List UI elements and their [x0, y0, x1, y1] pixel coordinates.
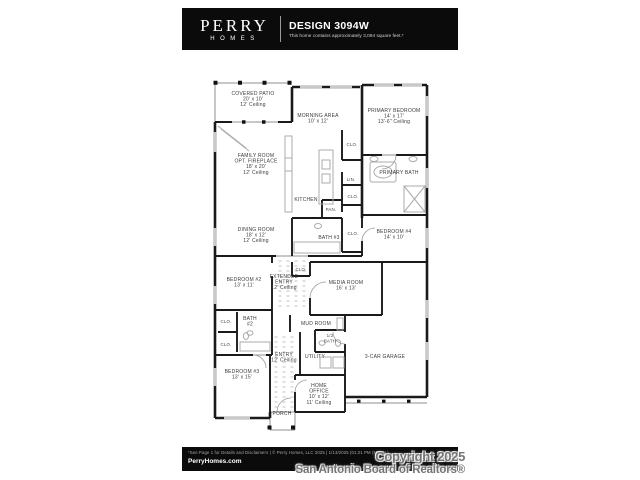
kitchen-counter — [285, 136, 292, 212]
room-label-bath-2: #2 — [247, 322, 253, 328]
watermark-board: San Antonio Board of Realtors® — [0, 464, 465, 476]
room-label-covered-patio: 12' Ceiling — [240, 102, 265, 108]
room-label-clo-extended-entry: CLO. — [295, 267, 306, 272]
room-label-clo-primary: CLO. — [346, 142, 357, 147]
room-label-lin: LIN. — [347, 177, 356, 182]
room-label-primary-bedroom: 13'-6" Ceiling — [378, 119, 410, 125]
room-label-bath-3: BATH #3 — [318, 235, 339, 241]
bath2-tub — [240, 342, 270, 351]
floor-plan-drawing: COVERED PATIO20' x 10'12' CeilingMORNING… — [0, 0, 640, 480]
room-label-half-bath: 1/2 — [327, 333, 334, 338]
mls-watermark: Copyright 2025 San Antonio Board of Real… — [0, 450, 465, 476]
room-label-half-bath: BATH — [324, 339, 336, 344]
room-label-clo-hall: CLO. — [347, 194, 358, 199]
watermark-copyright: Copyright 2025 — [0, 450, 465, 464]
room-label-entry: 12' Ceiling — [271, 358, 296, 364]
vanity-sink — [409, 156, 417, 161]
optional-fireplace — [218, 126, 249, 151]
room-label-bedroom-2: 13' x 11' — [234, 283, 254, 289]
room-label-pan: PAN. — [326, 207, 337, 212]
vanity-sink — [370, 156, 378, 161]
dryer — [333, 357, 344, 368]
room-label-clo-bedroom4: CLO. — [347, 231, 358, 236]
floor-plan-sheet: PERRY HOMES DESIGN 3094W This home conta… — [0, 0, 640, 480]
kitchen-island — [319, 150, 333, 204]
room-label-mud-room: MUD ROOM — [301, 321, 331, 327]
room-label-porch: PORCH — [272, 411, 291, 417]
room-label-utility: UTILITY — [305, 354, 325, 360]
mudroom-bench — [337, 318, 343, 330]
room-label-home-office: 11' Ceiling — [306, 400, 331, 406]
room-label-extended-entry: 12' Ceiling — [271, 285, 296, 291]
room-label-bedroom-3: 13' x 15' — [232, 375, 252, 381]
bath3-tub — [294, 242, 340, 253]
room-label-bedroom-4: 14' x 10' — [384, 235, 404, 241]
room-label-clo-bath2-lower: CLO. — [220, 342, 231, 347]
room-label-family-room: 12' Ceiling — [243, 170, 268, 176]
room-label-garage: 3-CAR GARAGE — [365, 354, 406, 360]
room-label-morning-area: 10' x 12' — [308, 119, 328, 125]
room-label-media-room: 16' x 13' — [336, 286, 356, 292]
room-label-kitchen: KITCHEN — [294, 197, 318, 203]
room-label-dining-room: 12' Ceiling — [243, 238, 268, 244]
room-label-clo-bath2-upper: CLO. — [220, 319, 231, 324]
room-label-primary-bath: PRIMARY BATH — [379, 170, 419, 176]
